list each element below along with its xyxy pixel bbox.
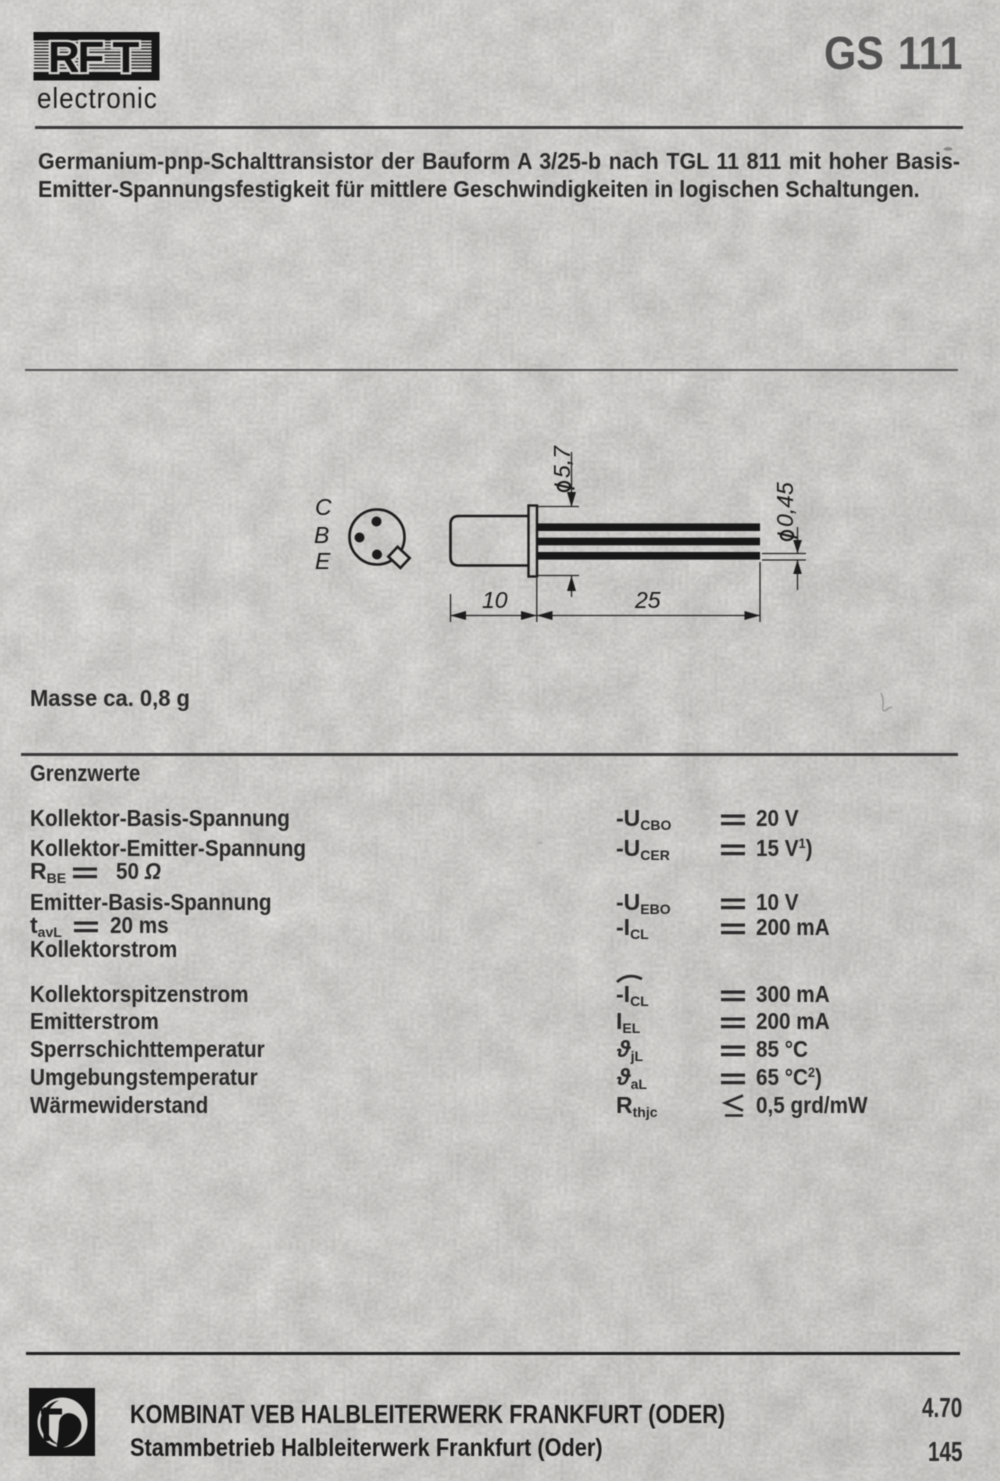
- svg-text:5,7: 5,7: [549, 445, 575, 478]
- svg-text:25: 25: [634, 587, 661, 613]
- svg-text:B: B: [314, 522, 329, 548]
- svg-text:0,45: 0,45: [772, 482, 798, 527]
- svg-text:E: E: [315, 548, 331, 574]
- svg-text:F: F: [78, 33, 105, 82]
- svg-text:10: 10: [482, 587, 508, 613]
- svg-text:T: T: [113, 33, 140, 82]
- svg-text:R: R: [48, 33, 80, 82]
- svg-text:C: C: [315, 494, 332, 520]
